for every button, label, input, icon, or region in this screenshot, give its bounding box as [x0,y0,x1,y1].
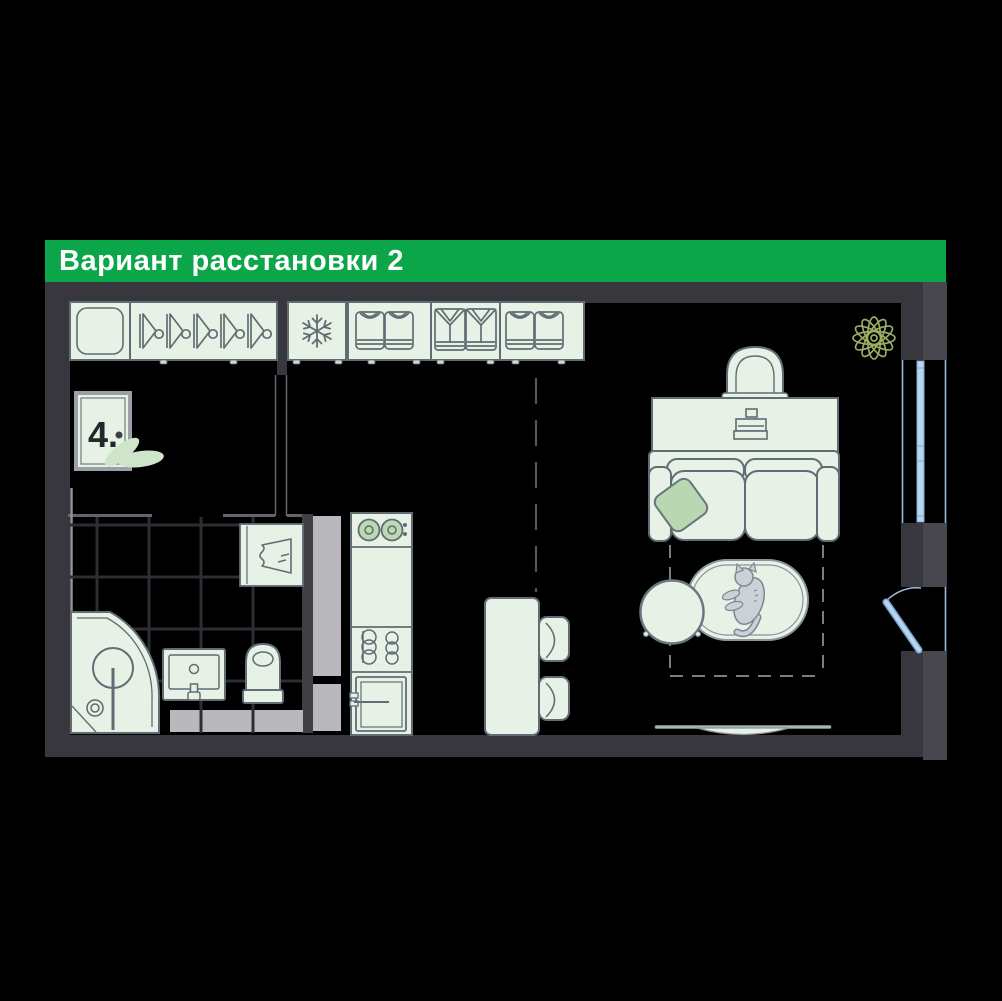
entrance-door-plate: 4. [76,393,165,471]
door-swing-icon [886,588,921,601]
wall-right-mid-outer [923,523,947,587]
desk [652,398,838,452]
window [903,360,946,523]
wall-bottom [45,735,923,757]
dining-table [485,598,539,735]
window-glass-icon [917,361,924,522]
wall-right-lower [901,651,923,757]
refrigerator [288,302,346,360]
coffee-table [641,581,704,644]
wall-top-outer-corner [923,282,947,303]
plant-icon [853,317,896,360]
wall-right-mid [901,523,923,587]
desk-chair [722,347,788,399]
wall-right-lower-outer [923,651,947,760]
washbasin [163,649,225,700]
floor-plan-svg: 4. [0,0,1002,1001]
duct-block-lower [313,684,341,731]
duct-block-upper [313,516,341,676]
toilet [243,644,283,703]
wall-right-upper-outer [923,302,947,360]
wall-left [45,282,70,757]
kitchen-unit [350,513,412,735]
wall-wardrobe-fridge [277,302,287,375]
wardrobe-shelf-box [70,302,130,360]
wall-top [45,282,923,303]
wardrobe-hangers [130,302,277,360]
tv-icon [697,728,789,735]
door-number: 4. [88,414,118,455]
balcony-door [886,587,946,651]
bathroom-bottom-ledge [170,710,303,732]
floor-plan-image: Вариант расстановки 2 [0,0,1002,1001]
clothes-shelf-unit [348,302,584,360]
faucet-icon [188,684,200,700]
house-plant [853,317,896,360]
wall-right-upper [901,302,923,360]
towel-cabinet [240,524,303,586]
dining-chairs [539,617,569,720]
tv [655,726,831,735]
